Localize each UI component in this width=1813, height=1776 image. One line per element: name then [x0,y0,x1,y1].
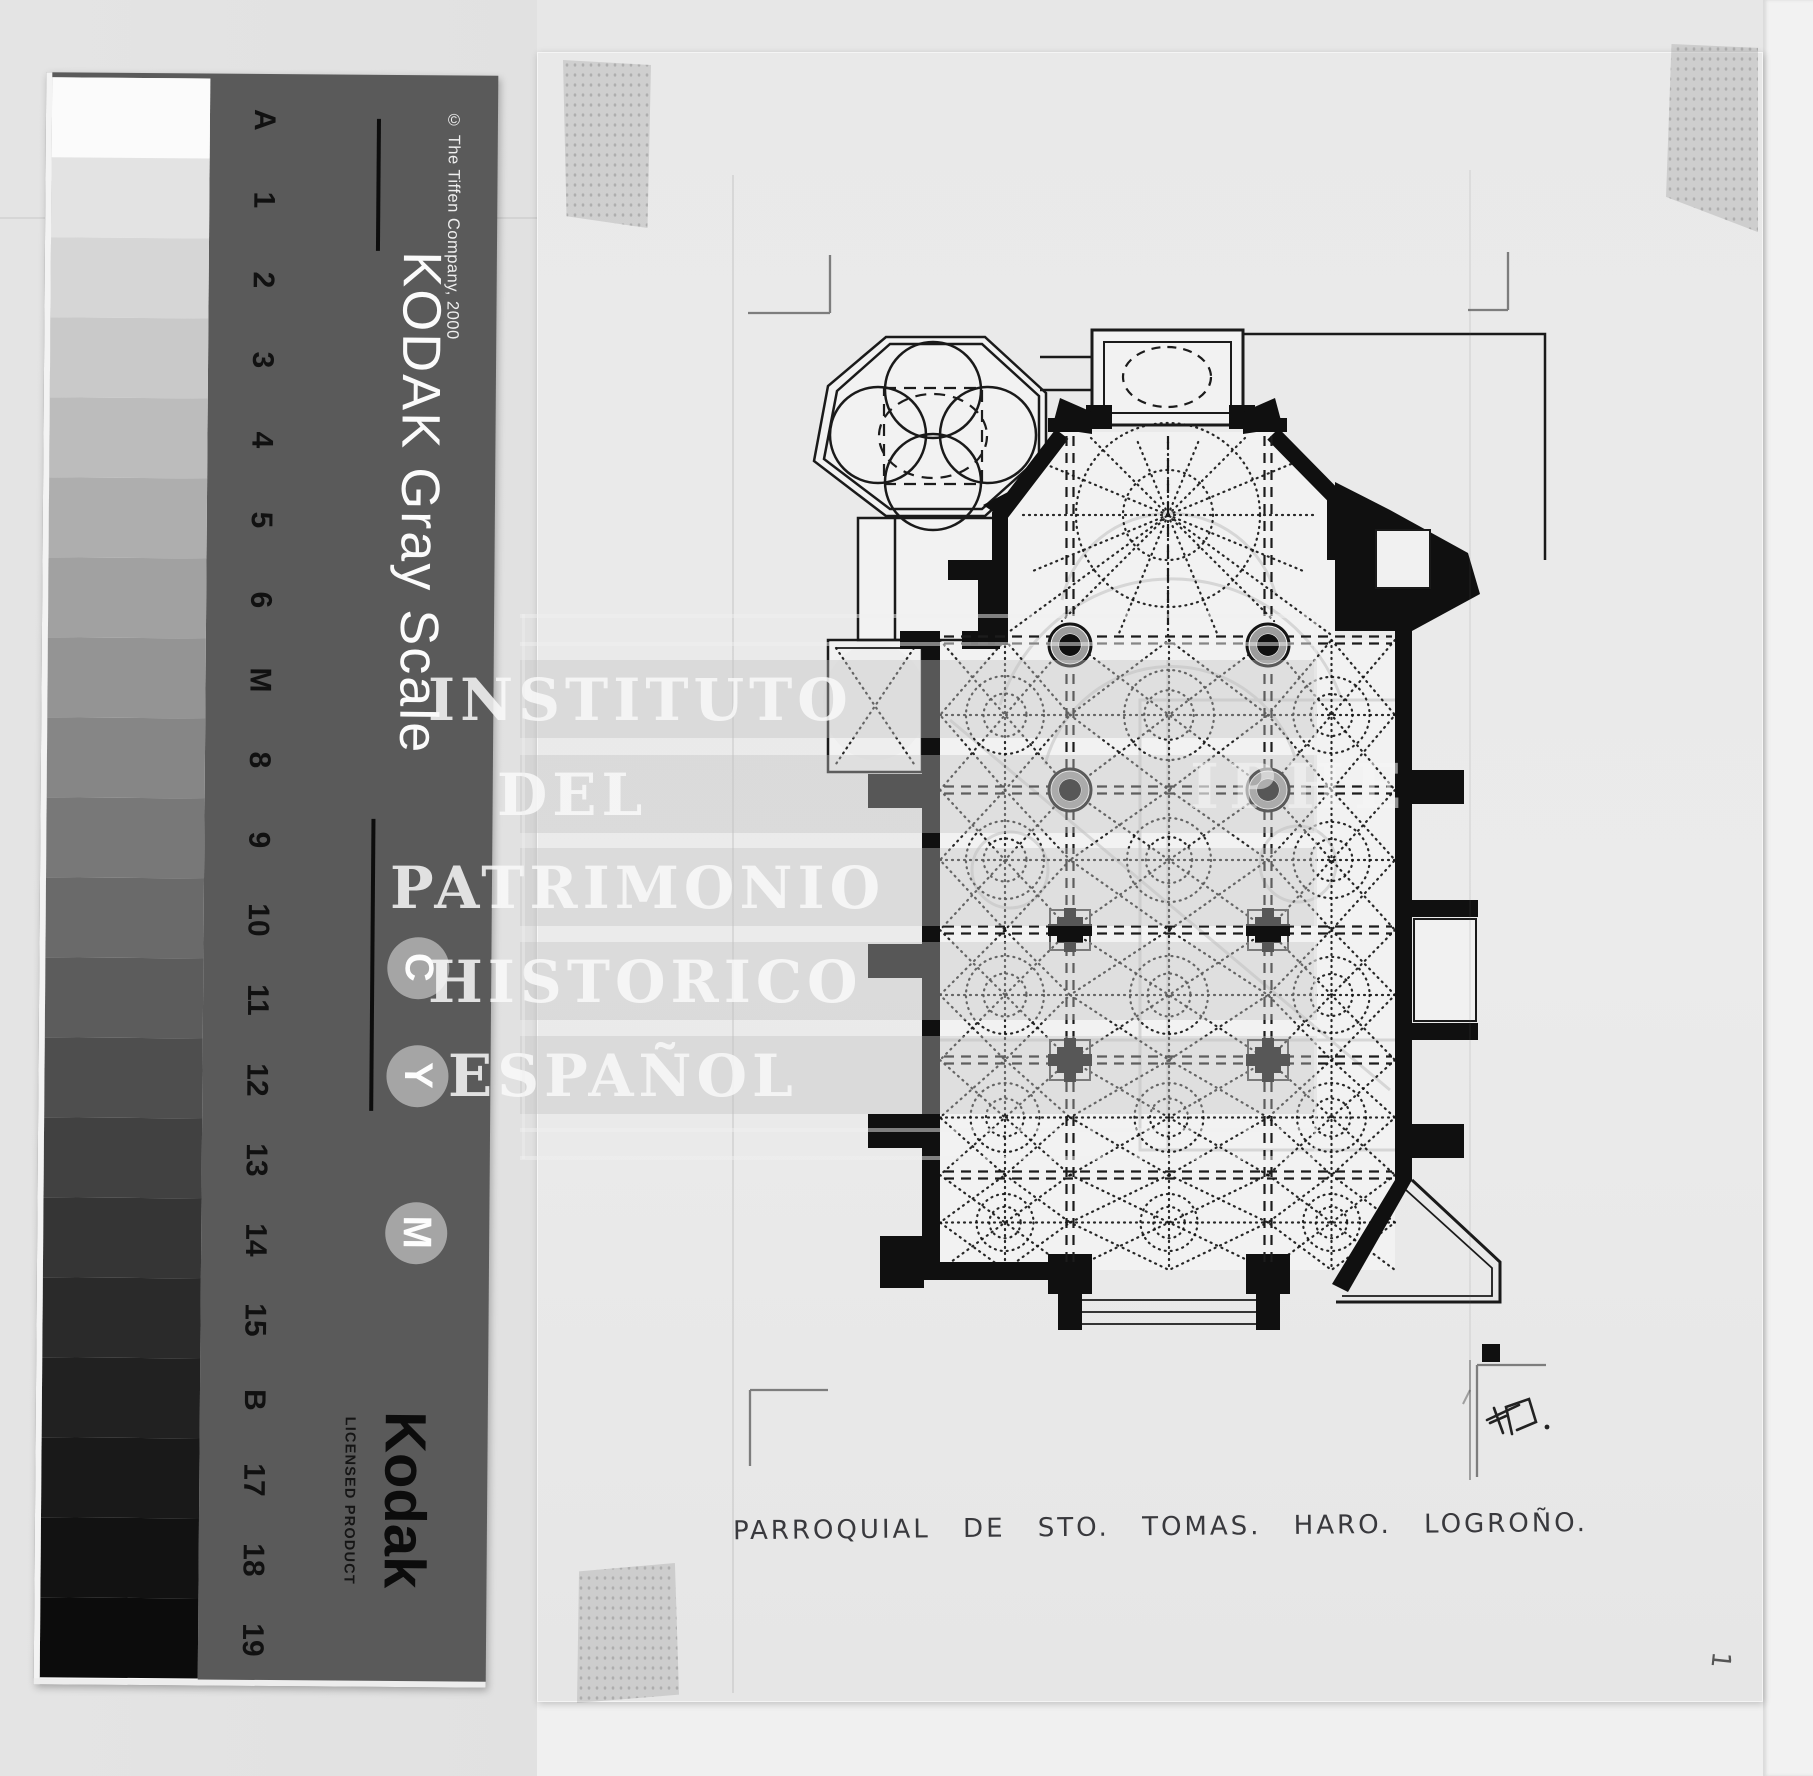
round-column [1049,624,1091,666]
sheet-number: 1 [1704,1650,1736,1670]
archival-scan: A123456M89101112131415B171819 KODAK Gray… [0,0,1813,1776]
round-column [1247,769,1289,811]
round-column [1247,624,1289,666]
architect-signature [1487,1399,1549,1434]
round-column [1049,769,1091,811]
